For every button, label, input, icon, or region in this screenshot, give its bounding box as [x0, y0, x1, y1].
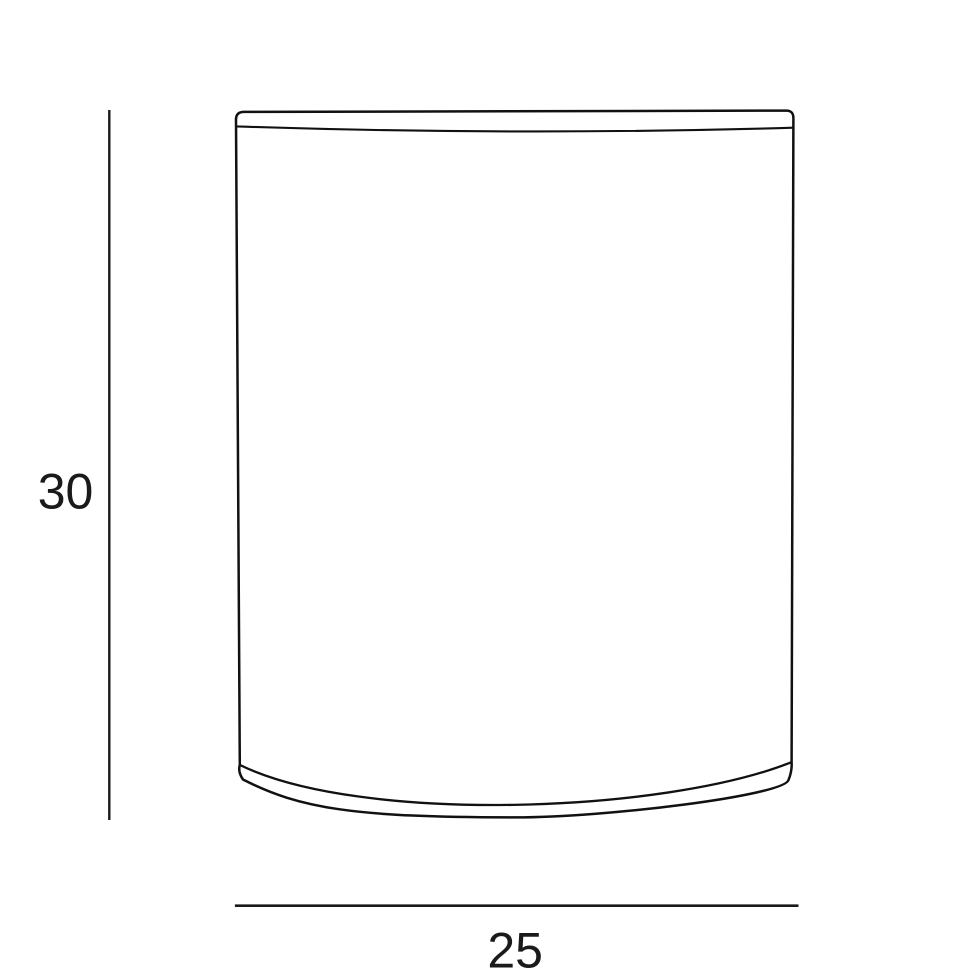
svg-text:30: 30: [38, 463, 94, 519]
svg-text:25: 25: [487, 923, 543, 971]
